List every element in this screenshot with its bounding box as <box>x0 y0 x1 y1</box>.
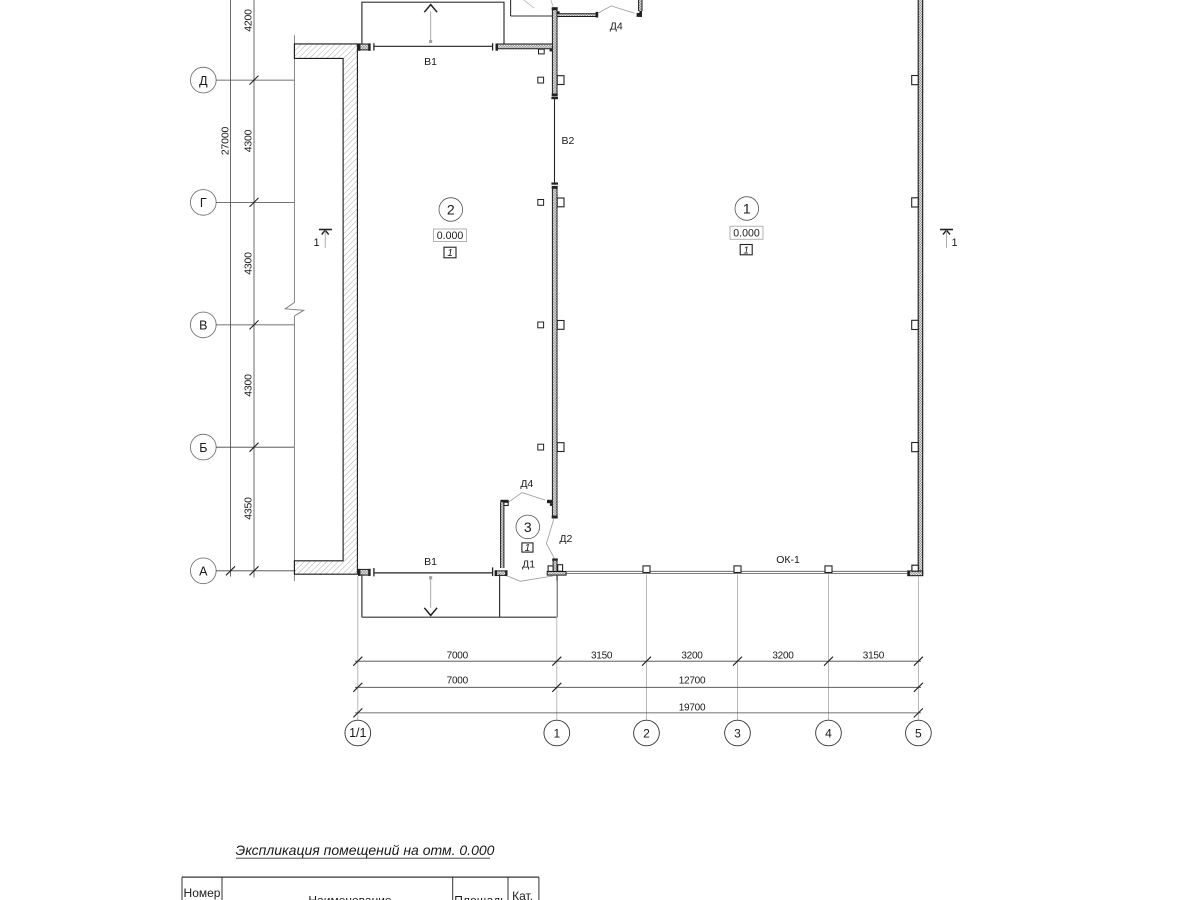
svg-text:4: 4 <box>825 727 832 741</box>
svg-text:2: 2 <box>447 202 455 218</box>
svg-text:3200: 3200 <box>772 651 794 662</box>
svg-text:4300: 4300 <box>243 374 255 397</box>
svg-text:1: 1 <box>951 237 957 249</box>
svg-text:Б: Б <box>199 441 207 455</box>
svg-text:1: 1 <box>525 543 531 554</box>
svg-text:0.000: 0.000 <box>437 230 464 242</box>
svg-text:Номер: Номер <box>184 886 221 900</box>
svg-text:27000: 27000 <box>219 127 231 156</box>
svg-text:7000: 7000 <box>447 651 469 662</box>
svg-text:А: А <box>199 565 208 579</box>
svg-text:3200: 3200 <box>681 651 703 662</box>
svg-text:Д2: Д2 <box>559 533 572 545</box>
svg-text:1: 1 <box>743 201 751 217</box>
svg-text:4300: 4300 <box>243 252 255 275</box>
svg-text:4200: 4200 <box>243 9 255 32</box>
svg-text:Площадь: Площадь <box>454 893 506 900</box>
svg-text:Г: Г <box>200 196 207 210</box>
svg-text:1: 1 <box>447 248 453 259</box>
svg-text:Д: Д <box>199 74 208 88</box>
svg-text:7000: 7000 <box>447 676 469 687</box>
svg-text:Кат.: Кат. <box>512 889 533 900</box>
svg-text:12700: 12700 <box>679 676 706 687</box>
svg-text:В: В <box>199 319 207 333</box>
svg-text:Д4: Д4 <box>520 478 533 490</box>
svg-text:2: 2 <box>643 727 650 741</box>
svg-text:1/1: 1/1 <box>349 726 366 740</box>
svg-text:Экспликация помещений на отм.: Экспликация помещений на отм. 0.000 <box>236 842 495 858</box>
svg-text:3150: 3150 <box>863 651 885 662</box>
svg-text:4350: 4350 <box>243 497 255 520</box>
svg-text:Д1: Д1 <box>522 559 535 571</box>
svg-text:1: 1 <box>313 237 319 249</box>
svg-text:В2: В2 <box>561 135 574 147</box>
svg-text:19700: 19700 <box>679 702 706 713</box>
svg-text:Наименование: Наименование <box>308 893 392 900</box>
svg-text:Д4: Д4 <box>610 21 623 33</box>
svg-text:3150: 3150 <box>591 651 613 662</box>
svg-text:В1: В1 <box>424 56 437 68</box>
svg-text:0.000: 0.000 <box>733 228 760 240</box>
svg-text:4300: 4300 <box>243 129 255 152</box>
svg-text:1: 1 <box>553 727 560 741</box>
svg-text:1: 1 <box>743 245 749 256</box>
svg-text:5: 5 <box>915 727 922 741</box>
svg-text:В1: В1 <box>424 556 437 568</box>
svg-text:ОК-1: ОК-1 <box>776 554 800 566</box>
svg-text:3: 3 <box>734 727 741 741</box>
svg-text:3: 3 <box>524 519 532 535</box>
